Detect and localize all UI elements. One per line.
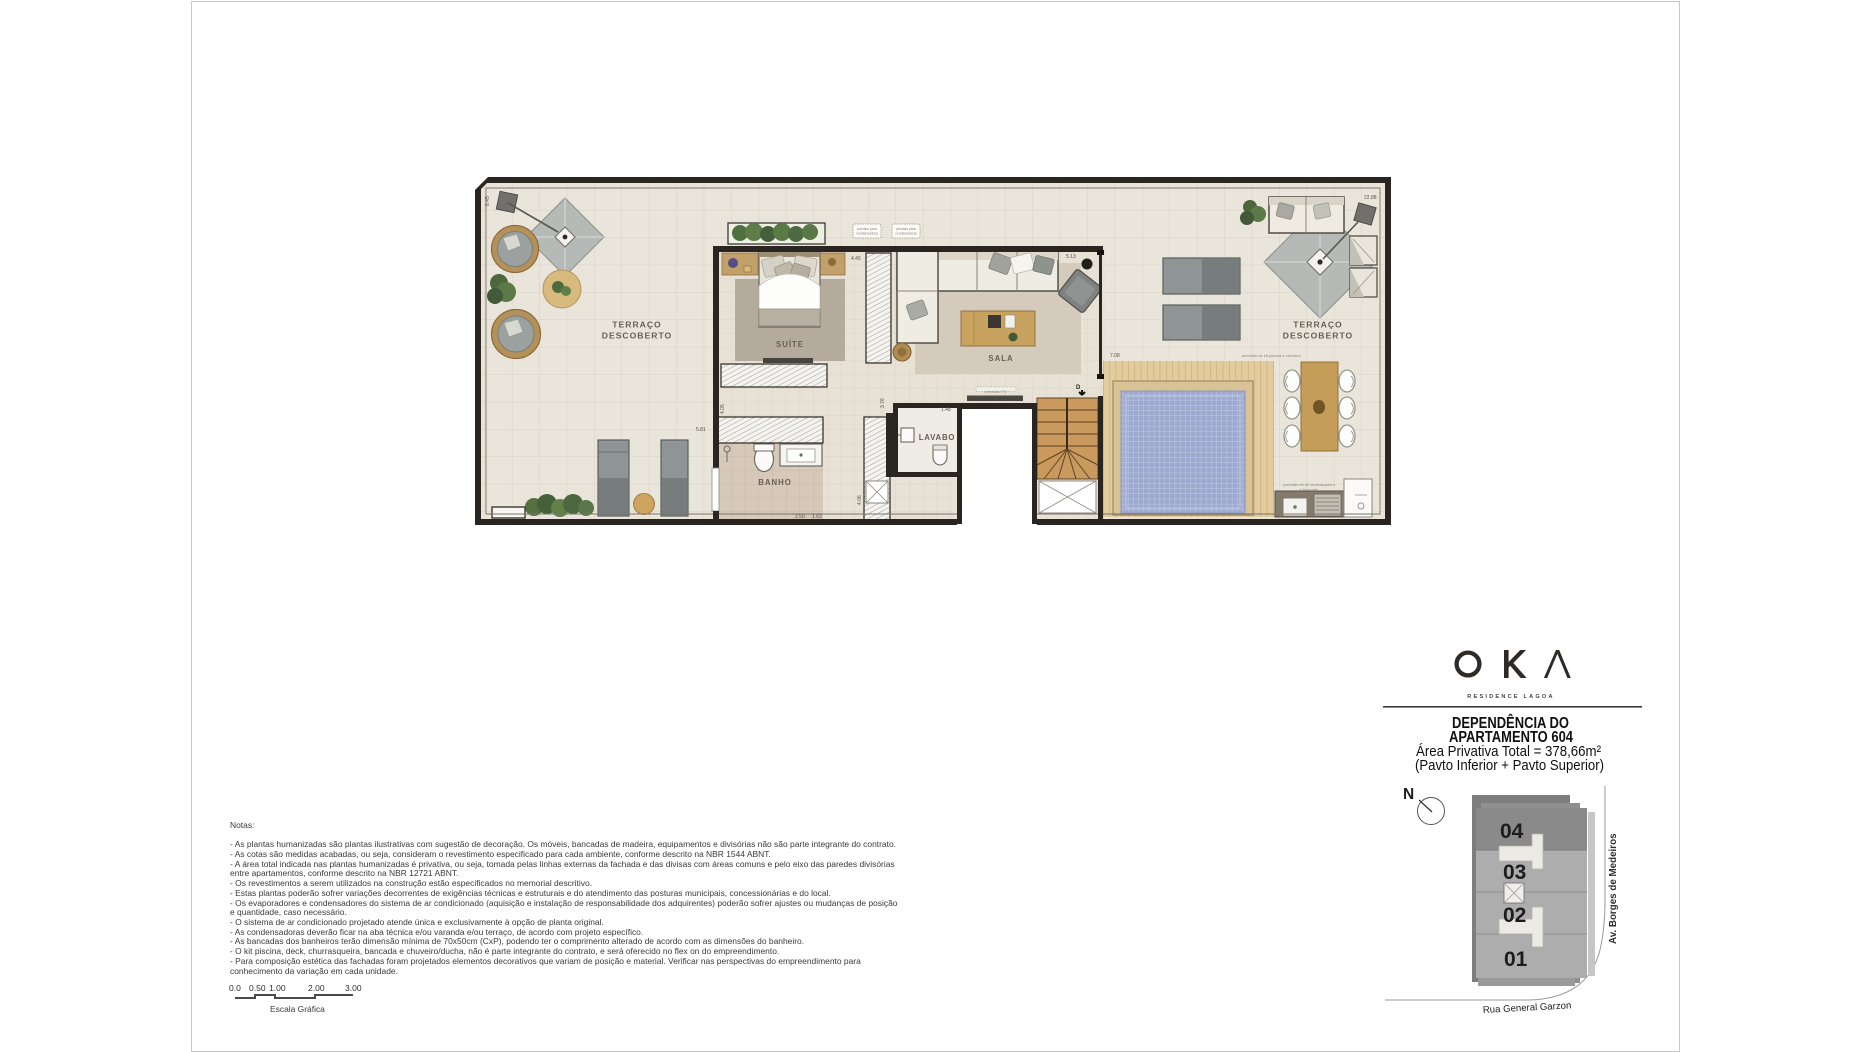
svg-text:(Pavto Inferior + Pavto Superi: (Pavto Inferior + Pavto Superior)	[1415, 757, 1604, 774]
